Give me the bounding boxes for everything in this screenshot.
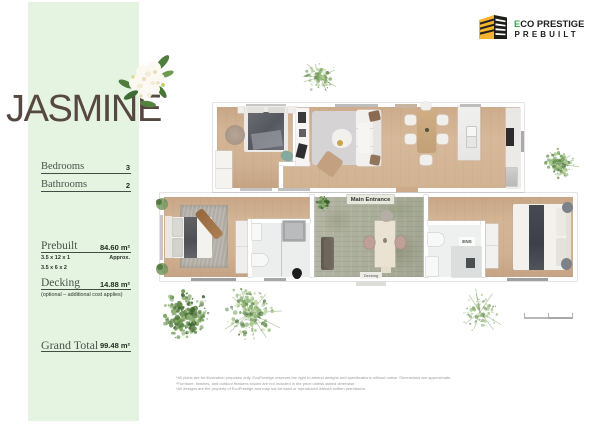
svg-text:PREBUILT: PREBUILT — [515, 30, 579, 39]
svg-text:ECO PRESTIGE: ECO PRESTIGE — [514, 18, 584, 29]
